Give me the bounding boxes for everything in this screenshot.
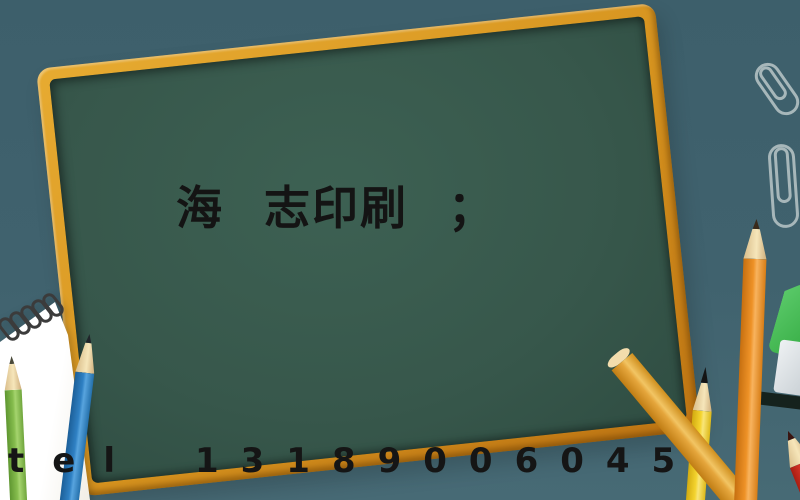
board-title: 海 志印刷 ； (176, 172, 496, 238)
pencil-wood (693, 382, 714, 411)
phone-label: tel (8, 441, 143, 481)
pencil-wood (743, 229, 767, 260)
title-segment-1: 海 (176, 172, 224, 238)
pencil-wood (75, 342, 97, 374)
phone-line: tel 13189006045 (8, 441, 697, 481)
pencil-tip (753, 219, 760, 229)
pencil-tip (701, 367, 709, 383)
pencil-tip (86, 334, 93, 344)
red-pencil (777, 427, 800, 500)
pencil-body (733, 259, 766, 500)
chalkboard-surface (49, 16, 687, 483)
title-segment-2: 志印刷 (264, 172, 408, 238)
scene-background: 海 志印刷 ； (0, 0, 800, 500)
chalkboard-frame (36, 3, 700, 497)
paperclip-icon (767, 143, 800, 229)
pencil-wood (3, 364, 21, 391)
phone-number: 13189006045 (195, 441, 697, 481)
paperclip-icon (750, 58, 800, 120)
pencil-tip (9, 356, 14, 364)
orange-pencil (733, 219, 767, 500)
title-segment-3: ； (448, 172, 496, 238)
